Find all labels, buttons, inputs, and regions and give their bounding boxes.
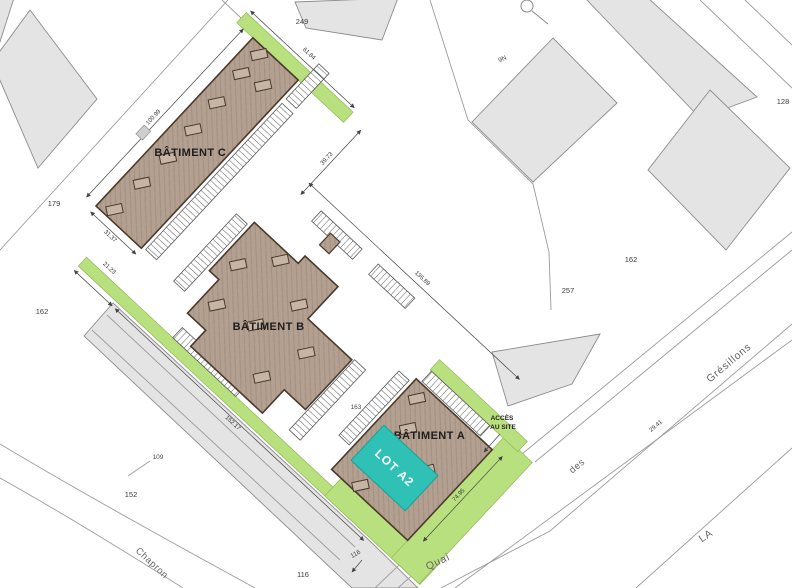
access-label-line2: AU SITE [490,424,516,431]
neighbor-parcel [295,0,398,40]
street-la-edge [636,448,792,588]
parcel-162-right-label: 162 [625,255,638,264]
parcel-152-label: 152 [125,490,138,499]
dim-gap: 39.73 [320,151,335,167]
neighbor-parcel [492,334,600,406]
access-label-line1: ACCÈS [491,413,514,422]
parcel-249-label: 249 [296,17,309,26]
parcel-116-label: 116 [297,570,309,579]
dim-top: 100.99 [145,108,162,126]
street-la-label: LA [697,527,716,545]
street-chapron-label: Chapron [133,545,170,581]
parking-row [369,264,415,308]
dim-street: 29.41 [649,419,665,434]
dim-width-c: 31.37 [102,229,118,244]
dim-east: 135.89 [413,270,431,287]
parking-row [312,211,363,259]
road-edge-ne [745,0,792,45]
parcel-line [222,0,241,18]
parcel-109-leader [128,461,150,476]
parcel-257-label: 257 [562,286,575,295]
dim-line-gap [301,130,361,194]
dim-end-c: 61.84 [301,47,317,62]
neighbor-parcel [0,10,97,168]
parcel-128-label: 128 [777,97,790,106]
parcel-163-label: 163 [351,404,362,411]
building-c-label: BÂTIMENT C [154,146,226,159]
dim-tick-box [136,125,151,140]
building-a-label: BÂTIMENT A [394,429,465,442]
parcel-179-label: 179 [48,199,61,208]
neighbor-parcel [648,90,790,250]
street-des-label: des [567,457,587,476]
site-plan-svg: BÂTIMENT C BÂTIMENT B [0,0,792,588]
parcel-9n-label: 9N [497,54,508,64]
site-plan: BÂTIMENT C BÂTIMENT B [0,0,792,588]
parcel-109-label: 109 [153,454,164,461]
street-chapron-edge [0,444,255,588]
survey-symbol [521,0,548,24]
building-b-label: BÂTIMENT B [233,320,305,333]
neighbor-parcel [472,38,617,182]
building-c: BÂTIMENT C [96,37,300,249]
parcel-162-left-label: 162 [36,307,49,316]
